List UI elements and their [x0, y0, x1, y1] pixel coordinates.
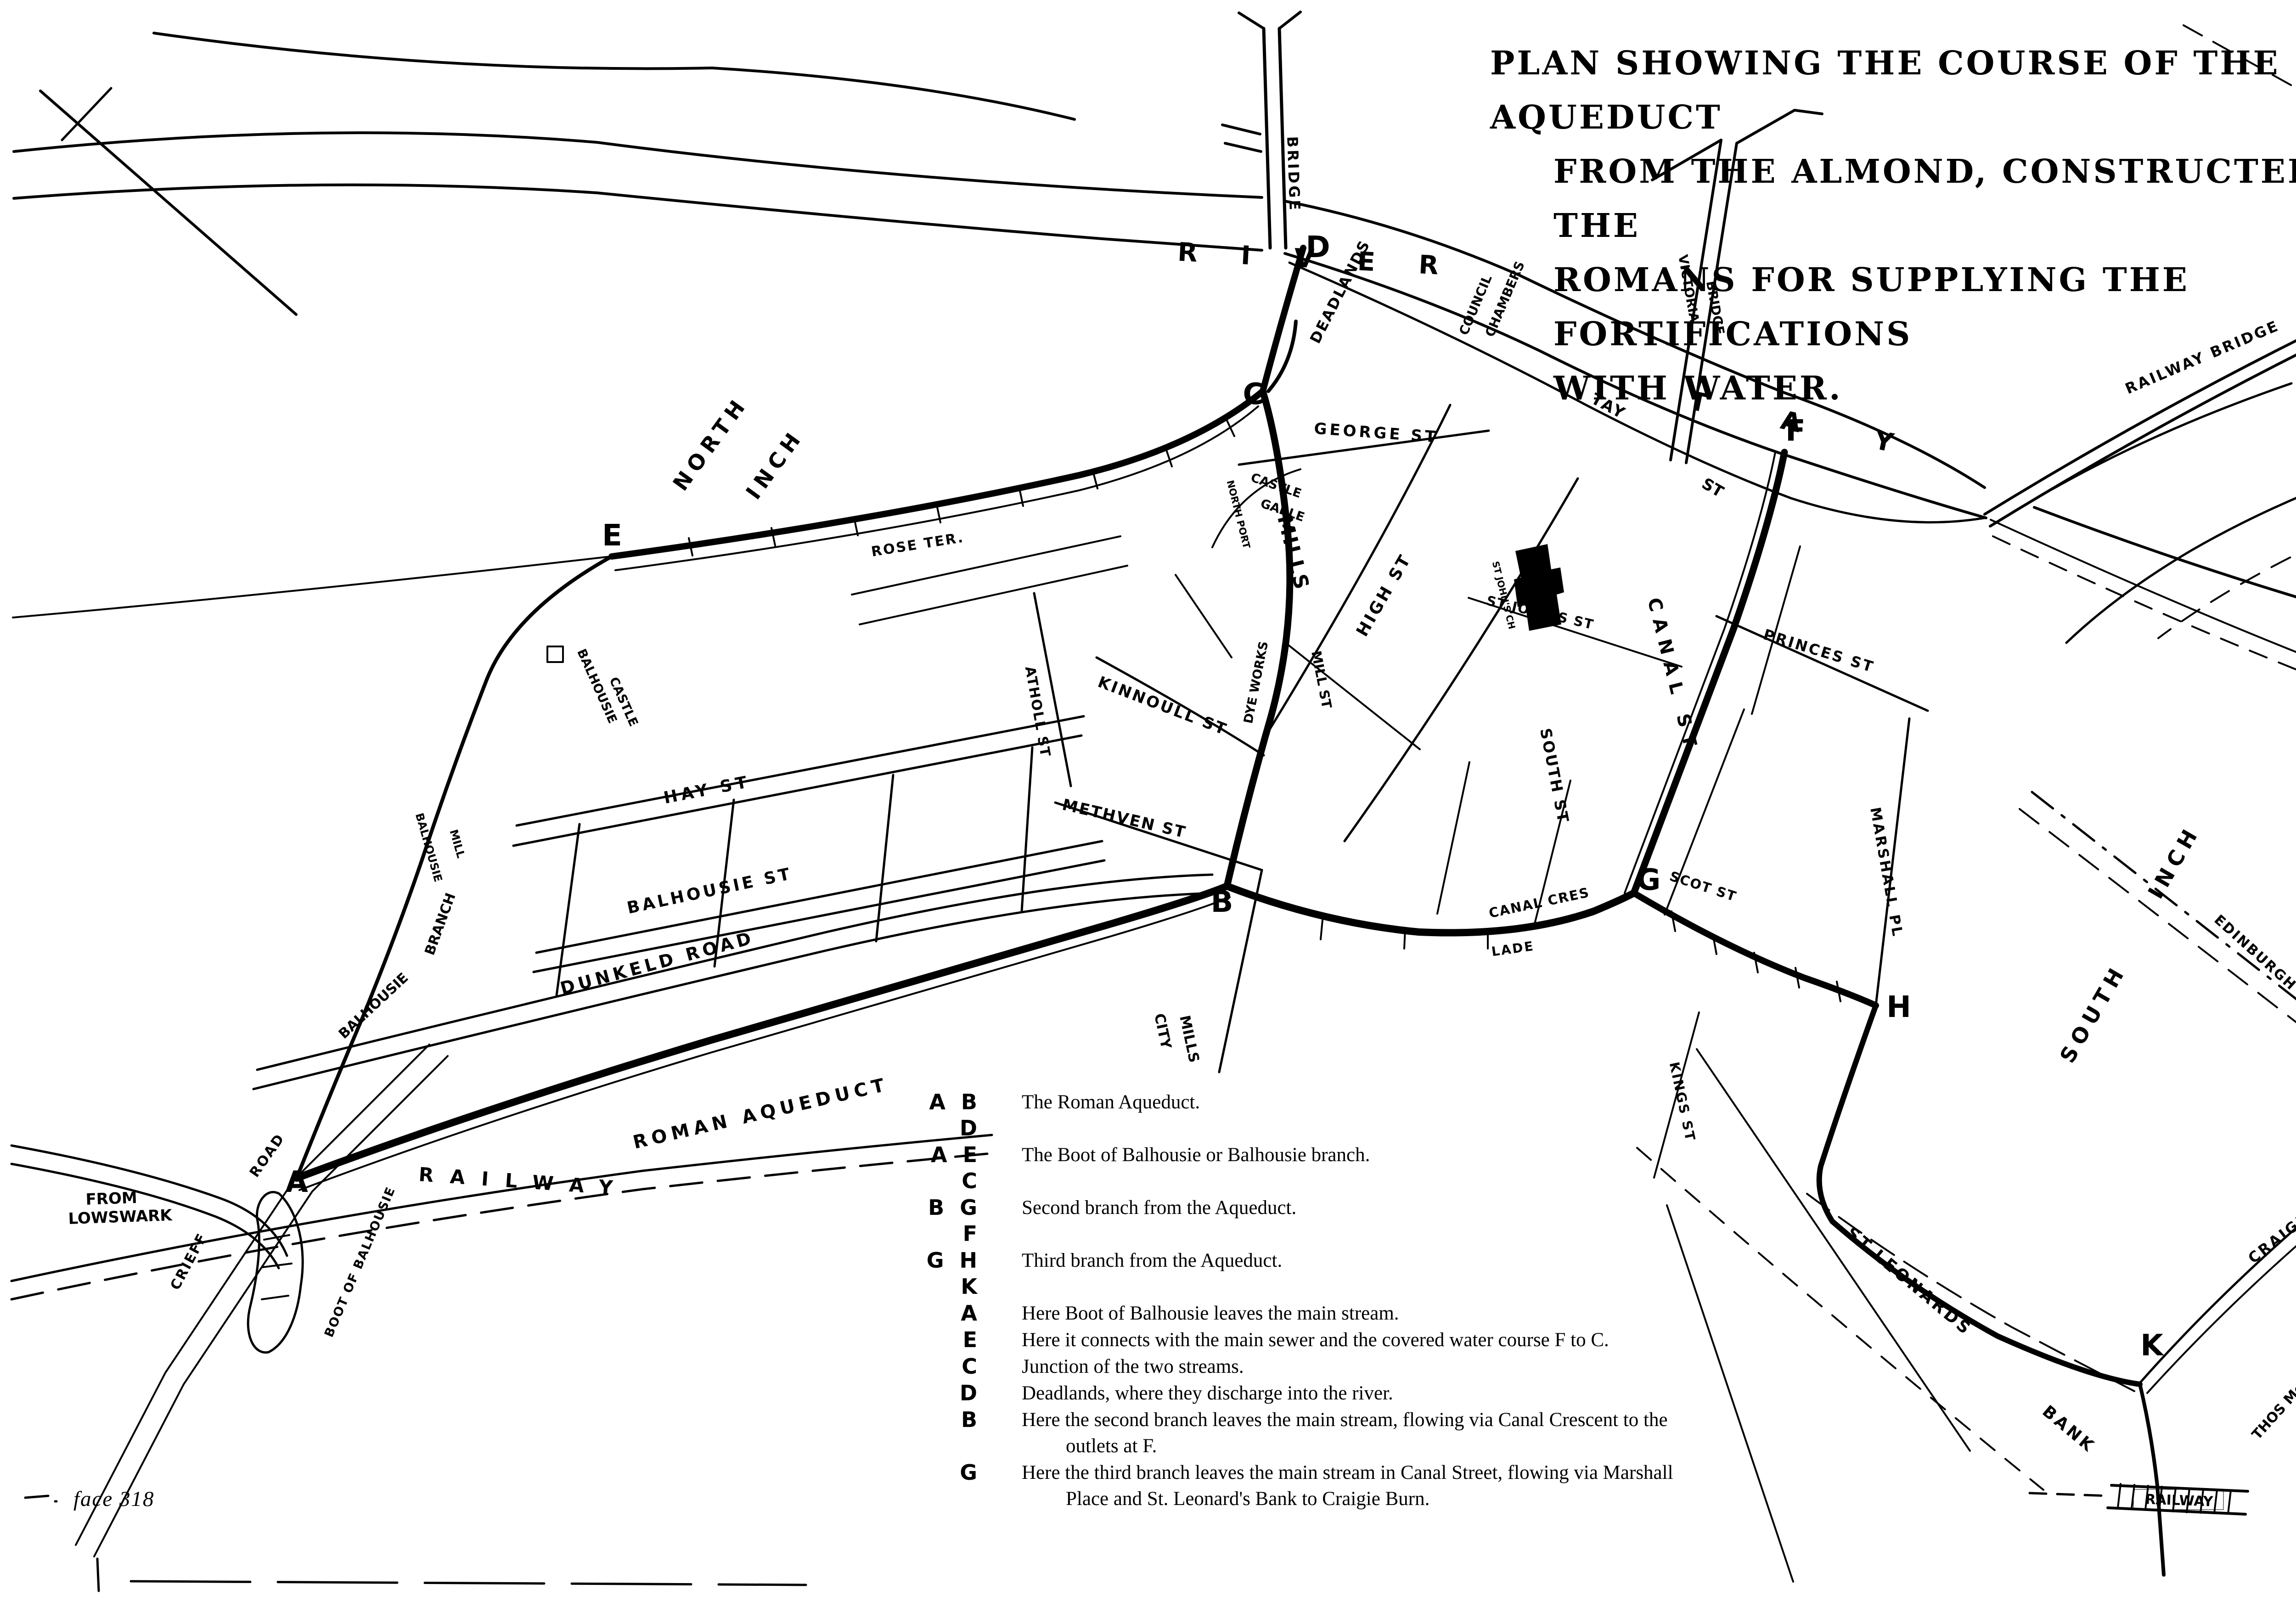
legend-text: Third branch from the Aqueduct. — [1022, 1247, 1720, 1274]
street-hay — [513, 736, 1081, 846]
street-riverside — [1991, 520, 2296, 688]
legend-codes: G H K — [912, 1247, 981, 1300]
station-dash-ext — [2030, 1493, 2108, 1496]
label-railway-station: RAILWAY — [2145, 1491, 2214, 1510]
map-legend: A B D The Roman Aqueduct. A E C The Boot… — [912, 1089, 1720, 1512]
label-crieff-road: ROAD — [247, 1130, 288, 1180]
label-roman-aqueduct: ROMAN AQUEDUCT — [631, 1074, 891, 1153]
street-inch-edge — [13, 556, 611, 618]
label-methven-st: METHVEN ST — [1060, 796, 1188, 842]
street-riverside-dash — [1993, 536, 2296, 703]
legend-row: B Here the second branch leaves the main… — [912, 1407, 1720, 1459]
legend-text: Junction of the two streams. — [1022, 1354, 1720, 1380]
label-tay-st-2: ST — [1699, 474, 1727, 501]
street-cross — [557, 824, 580, 995]
nw-stream — [40, 91, 296, 315]
legend-row: E Here it connects with the main sewer a… — [912, 1327, 1720, 1353]
label-kinnoull-st: KINNOULL ST — [1095, 673, 1230, 739]
legend-codes: A B D — [912, 1089, 981, 1141]
marker-g: G — [1637, 863, 1661, 897]
label-balhousie-mill-2: MILL — [447, 828, 467, 859]
page-crease-line — [131, 1581, 806, 1585]
station-rail — [2108, 1508, 2245, 1514]
marker-e: E — [602, 519, 622, 553]
aqueduct-lade-b-c — [1227, 391, 1290, 886]
river-bank — [2034, 507, 2296, 630]
label-city-mills-2: MILLS — [1176, 1014, 1202, 1064]
street-mill — [1287, 644, 1420, 749]
legend-codes: C — [912, 1354, 981, 1380]
legend-text: The Boot of Balhousie or Balhousie branc… — [1022, 1142, 1720, 1168]
street-balhousie — [536, 841, 1102, 953]
lowswark-stream — [11, 1146, 287, 1256]
street-cross — [876, 775, 893, 941]
label-boot-of-balhousie: BOOT OF BALHOUSIE — [322, 1185, 399, 1339]
marker-d: D — [1306, 230, 1330, 264]
label-canal-st: CANAL ST — [1643, 595, 1702, 756]
street-stleonards — [1807, 1194, 2134, 1391]
river-bank — [14, 185, 1262, 250]
label-from-lowswark-2: LOWSWARK — [68, 1206, 173, 1228]
legend-codes: E — [912, 1327, 981, 1353]
perth-bridge-fork — [1279, 12, 1300, 28]
legend-row: A Here Boot of Balhousie leaves the main… — [912, 1300, 1720, 1326]
legend-codes: G — [912, 1460, 981, 1486]
label-north-inch-1: NORTH — [668, 391, 753, 495]
label-balhousie-st: BALHOUSIE ST — [625, 865, 794, 918]
label-north-port: NORTH PORT — [1225, 479, 1252, 550]
label-atholl-st: ATHOLL ST — [1022, 665, 1053, 758]
legend-codes: A — [912, 1300, 981, 1326]
legend-text: The Roman Aqueduct. — [1022, 1089, 1720, 1115]
street-southinch-road — [1697, 1049, 1970, 1451]
label-marshall-pl: MARSHALL PL — [1867, 806, 1906, 939]
balhousie-castle-symbol — [547, 646, 563, 662]
legend-row: D Deadlands, where they discharge into t… — [912, 1380, 1720, 1406]
branch-g-f — [1634, 452, 1784, 893]
signature-line-1: THOS McLAREN — [2249, 1343, 2296, 1443]
perth-bridge-tick — [1225, 143, 1261, 152]
legend-text: Here Boot of Balhousie leaves the main s… — [1022, 1300, 1720, 1326]
label-edinburgh-rd: EDINBURGH RD — [2211, 912, 2296, 1015]
boot-pond — [248, 1192, 303, 1352]
label-from-lowswark-1: FROM — [85, 1189, 137, 1209]
legend-codes: A E C — [912, 1142, 981, 1194]
street-craigie — [2147, 1168, 2296, 1393]
marker-h: H — [1886, 990, 1911, 1024]
label-south-inch-2: INCH — [2143, 820, 2205, 903]
label-balhousie-branch-2: BRANCH — [422, 891, 459, 957]
label-george-st: GEORGE ST — [1313, 420, 1439, 447]
map-title: PLAN SHOWING THE COURSE OF THE AQUEDUCT … — [1490, 36, 2296, 415]
legend-row: G H K Third branch from the Aqueduct. — [912, 1247, 1720, 1300]
label-rose-ter: ROSE TER. — [870, 529, 965, 560]
label-railway-left: RAILWAY — [418, 1163, 630, 1200]
legend-text: Here it connects with the main sewer and… — [1022, 1327, 1720, 1353]
street-craigie — [2140, 1157, 2296, 1383]
label-high-st: HIGH ST — [1353, 550, 1415, 640]
legend-row: G Here the third branch leaves the main … — [912, 1460, 1720, 1512]
label-scot-st: SCOT ST — [1668, 868, 1739, 904]
label-dunkeld-road: DUNKELD ROAD — [558, 927, 757, 999]
marker-c: C — [1243, 377, 1265, 411]
label-north-inch-2: INCH — [741, 424, 809, 504]
label-st-leonards-1: ST.LEONARDS — [1842, 1224, 1975, 1340]
marker-k: K — [2140, 1329, 2164, 1363]
river-bank — [154, 33, 1075, 119]
legend-text: Second branch from the Aqueduct. — [1022, 1195, 1720, 1221]
label-princes-st: PRINCES ST — [1761, 626, 1877, 676]
marker-a: A — [285, 1165, 308, 1199]
plate-note: face 318 — [73, 1487, 155, 1511]
station-rail — [2111, 1485, 2248, 1491]
river-inner-curve — [2066, 464, 2296, 643]
street-south — [1345, 478, 1578, 841]
aqueduct-plan-page: RIVER TAY BRIDGE DEADLANDS COUNCIL CHAMB… — [0, 0, 2296, 1612]
marker-f: F — [1785, 414, 1806, 448]
street-south-cross — [1437, 762, 1469, 914]
label-lade: LADE — [1491, 938, 1536, 960]
legend-row: A E C The Boot of Balhousie or Balhousie… — [912, 1142, 1720, 1194]
legend-row: B G F Second branch from the Aqueduct. — [912, 1195, 1720, 1247]
legend-codes: B G F — [912, 1195, 981, 1247]
street-canal-side — [1625, 452, 1775, 893]
perth-bridge-fork — [1239, 13, 1264, 28]
legend-row: C Junction of the two streams. — [912, 1354, 1720, 1380]
label-south-inch-1: SOUTH — [2055, 960, 2132, 1067]
label-craigie: CRAIGIE — [2245, 1204, 2296, 1267]
railway-lines — [11, 1135, 992, 1353]
street-crieff — [94, 1056, 448, 1556]
map-title-line: FROM THE ALMOND, CONSTRUCTED BY THE — [1490, 144, 2296, 253]
legend-text: Deadlands, where they discharge into the… — [1022, 1380, 1720, 1406]
legend-row: A B D The Roman Aqueduct. — [912, 1089, 1720, 1141]
street-roseter-block — [860, 566, 1127, 624]
railway-station-bar — [2030, 1484, 2248, 1514]
label-st-leonards-2: BANK — [2039, 1402, 2099, 1457]
craigie-burn — [2140, 1384, 2164, 1575]
street-balhousie — [534, 860, 1104, 972]
street-cross — [1022, 747, 1032, 911]
label-south-st: SOUTH ST — [1536, 727, 1572, 825]
label-dye-works: DYE WORKS — [1241, 640, 1271, 725]
map-title-line: ROMANS FOR SUPPLYING THE FORTIFICATIONS — [1490, 253, 2296, 361]
street-princes — [1716, 616, 1928, 711]
branch-h-k — [1819, 1005, 2140, 1384]
legend-codes: B — [912, 1407, 981, 1433]
street-north-port — [1176, 575, 1232, 657]
label-castle-gable-1: CASTLE — [1249, 471, 1303, 501]
aqueduct-e-c — [612, 391, 1263, 556]
map-title-line: PLAN SHOWING THE COURSE OF THE AQUEDUCT — [1490, 36, 2296, 144]
label-city-mills-1: CITY — [1151, 1012, 1175, 1050]
legend-text: Here the third branch leaves the main st… — [1022, 1460, 1720, 1512]
label-mills: MILLS — [1272, 513, 1314, 593]
marker-b: B — [1211, 885, 1233, 919]
label-perth-bridge: BRIDGE — [1283, 136, 1304, 213]
street-hay — [517, 716, 1084, 826]
legend-codes: D — [912, 1380, 981, 1406]
map-title-line: WITH WATER. — [1490, 361, 2296, 415]
branch-g-h — [1634, 893, 1876, 1005]
perth-bridge — [1264, 28, 1270, 248]
legend-text: Here the second branch leaves the main s… — [1022, 1407, 1720, 1459]
label-balhousie-branch-1: BALHOUSIE — [336, 970, 411, 1042]
perth-bridge-tick — [1222, 125, 1260, 134]
